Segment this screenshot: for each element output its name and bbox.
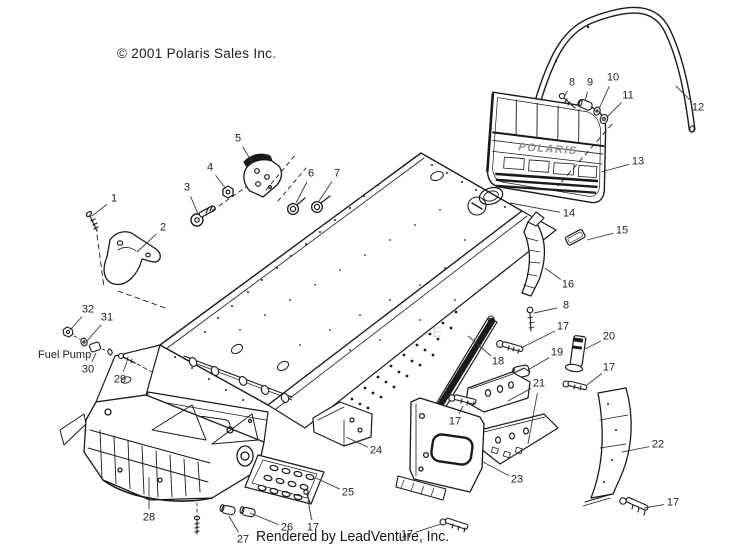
leader-line-2 <box>137 234 156 252</box>
callout-8: 8 <box>563 301 569 312</box>
callout-17: 17 <box>603 363 615 374</box>
leader-line-14 <box>510 203 560 212</box>
leader-line-31 <box>87 325 101 341</box>
callout-32: 32 <box>82 305 94 316</box>
callout-30: 30 <box>82 365 94 376</box>
callout-15: 15 <box>616 226 628 237</box>
leader-line-17 <box>308 500 311 519</box>
callout-29: 29 <box>114 375 126 386</box>
callout-3: 3 <box>184 183 190 194</box>
fuel-pump-label: Fuel Pump <box>38 349 91 361</box>
leader-line-15 <box>587 233 613 240</box>
leader-line-13 <box>601 164 629 172</box>
callout-20: 20 <box>603 332 615 343</box>
callout-21: 21 <box>533 379 545 390</box>
callout-25: 25 <box>342 488 354 499</box>
callout-11: 11 <box>622 91 633 102</box>
leader-line-10 <box>599 86 609 109</box>
leader-line-17 <box>521 331 555 348</box>
parts-diagram-page: LEADVENTURE <box>0 0 750 549</box>
callout-27: 27 <box>237 535 249 546</box>
leader-line-7 <box>319 181 332 201</box>
callout-6: 6 <box>308 169 314 180</box>
leader-line-17 <box>587 374 602 385</box>
leader-line-29 <box>123 362 127 372</box>
leader-line-19 <box>528 358 549 370</box>
leader-line-32 <box>70 317 82 330</box>
callout-28: 28 <box>143 513 155 524</box>
callout-18: 18 <box>492 357 504 368</box>
leader-line-21 <box>508 388 531 401</box>
callout-24: 24 <box>370 446 382 457</box>
leader-line-26 <box>250 513 279 525</box>
leader-line-20 <box>585 341 601 349</box>
leader-line-4 <box>215 175 226 189</box>
leader-line-12 <box>676 86 692 102</box>
callout-12: 12 <box>692 103 704 114</box>
callout-17: 17 <box>307 523 319 534</box>
callout-17: 17 <box>449 417 461 428</box>
leader-line-18 <box>468 336 491 356</box>
callout-31: 31 <box>101 313 113 324</box>
callout-19: 19 <box>551 348 563 359</box>
leader-line-21 <box>528 393 537 444</box>
leader-line-25 <box>316 478 340 489</box>
leader-line-5 <box>243 147 252 162</box>
callout-1: 1 <box>111 194 117 205</box>
leader-line-23 <box>483 462 509 476</box>
callout-17: 17 <box>557 322 569 333</box>
leader-line-11 <box>607 102 622 117</box>
copyright-text: © 2001 Polaris Sales Inc. <box>117 46 276 61</box>
leader-line-16 <box>545 268 561 280</box>
callout-13: 13 <box>632 157 644 168</box>
callout-16: 16 <box>562 280 574 291</box>
callout-9: 9 <box>587 78 593 89</box>
callout-17: 17 <box>401 530 413 541</box>
callout-8: 8 <box>569 78 575 89</box>
callout-4: 4 <box>207 163 213 174</box>
callout-22: 22 <box>652 440 664 451</box>
leader-line-22 <box>622 447 649 452</box>
callout-23: 23 <box>511 475 523 486</box>
leader-line-17 <box>459 406 463 414</box>
callout-10: 10 <box>607 73 619 84</box>
callout-14: 14 <box>563 209 575 220</box>
callout-5: 5 <box>235 134 241 145</box>
leader-line-8 <box>564 91 568 97</box>
leader-line-27 <box>229 516 238 532</box>
callout-leader-lines <box>0 0 750 549</box>
leader-line-24 <box>346 437 368 447</box>
leader-line-3 <box>191 196 198 214</box>
leader-line-8 <box>534 308 557 313</box>
callout-17: 17 <box>667 498 679 509</box>
callout-7: 7 <box>334 169 340 180</box>
leader-line-30 <box>92 353 96 362</box>
leader-line-1 <box>92 205 107 216</box>
callout-2: 2 <box>160 223 166 234</box>
callout-26: 26 <box>281 523 293 534</box>
leader-line-17 <box>644 505 664 508</box>
leader-line-6 <box>296 182 307 203</box>
leader-line-9 <box>585 92 588 101</box>
